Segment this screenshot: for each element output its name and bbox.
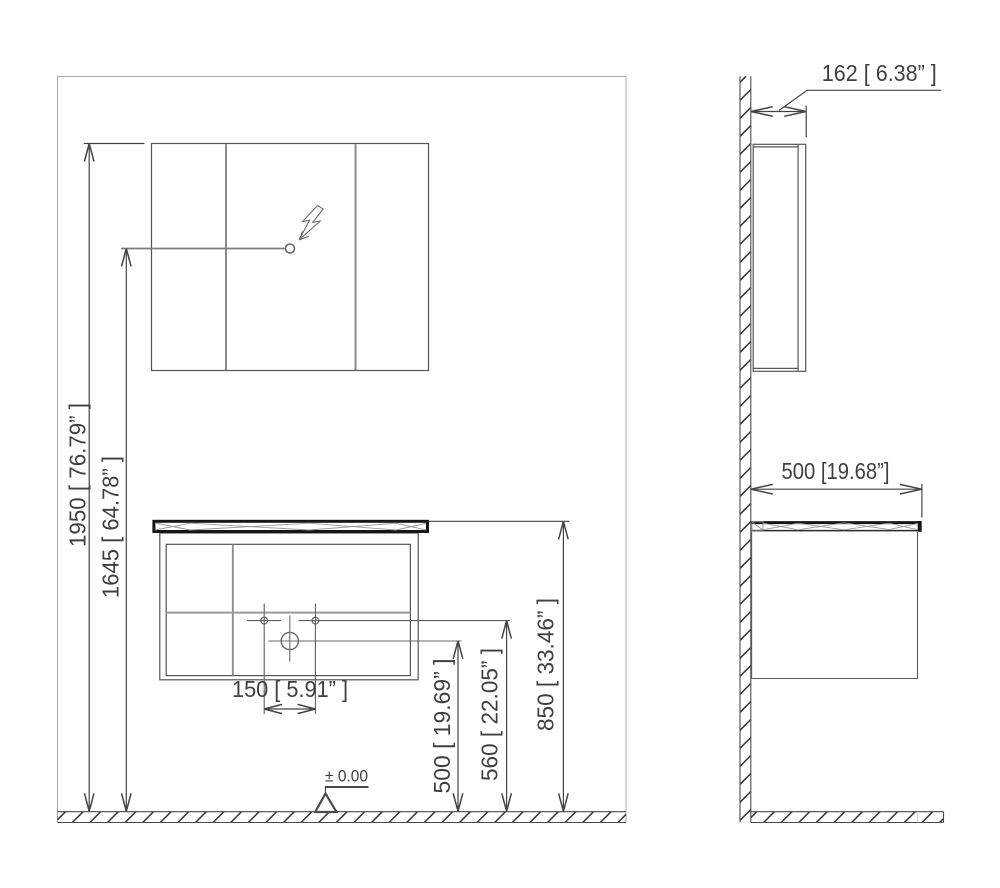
- svg-text:± 0.00: ± 0.00: [325, 767, 368, 786]
- svg-text:560 [ 22.05” ]: 560 [ 22.05” ]: [477, 648, 503, 781]
- svg-text:1950 [ 76.79” ]: 1950 [ 76.79” ]: [65, 403, 91, 547]
- svg-text:850 [ 33.46” ]: 850 [ 33.46” ]: [533, 598, 559, 731]
- svg-text:500 [19.68”]: 500 [19.68”]: [782, 458, 890, 484]
- svg-text:150 [ 5.91” ]: 150 [ 5.91” ]: [232, 676, 348, 702]
- svg-text:162 [ 6.38” ]: 162 [ 6.38” ]: [822, 60, 937, 86]
- svg-text:500 [ 19.69” ]: 500 [ 19.69” ]: [429, 659, 455, 794]
- svg-text:1645 [ 64.78” ]: 1645 [ 64.78” ]: [98, 456, 124, 598]
